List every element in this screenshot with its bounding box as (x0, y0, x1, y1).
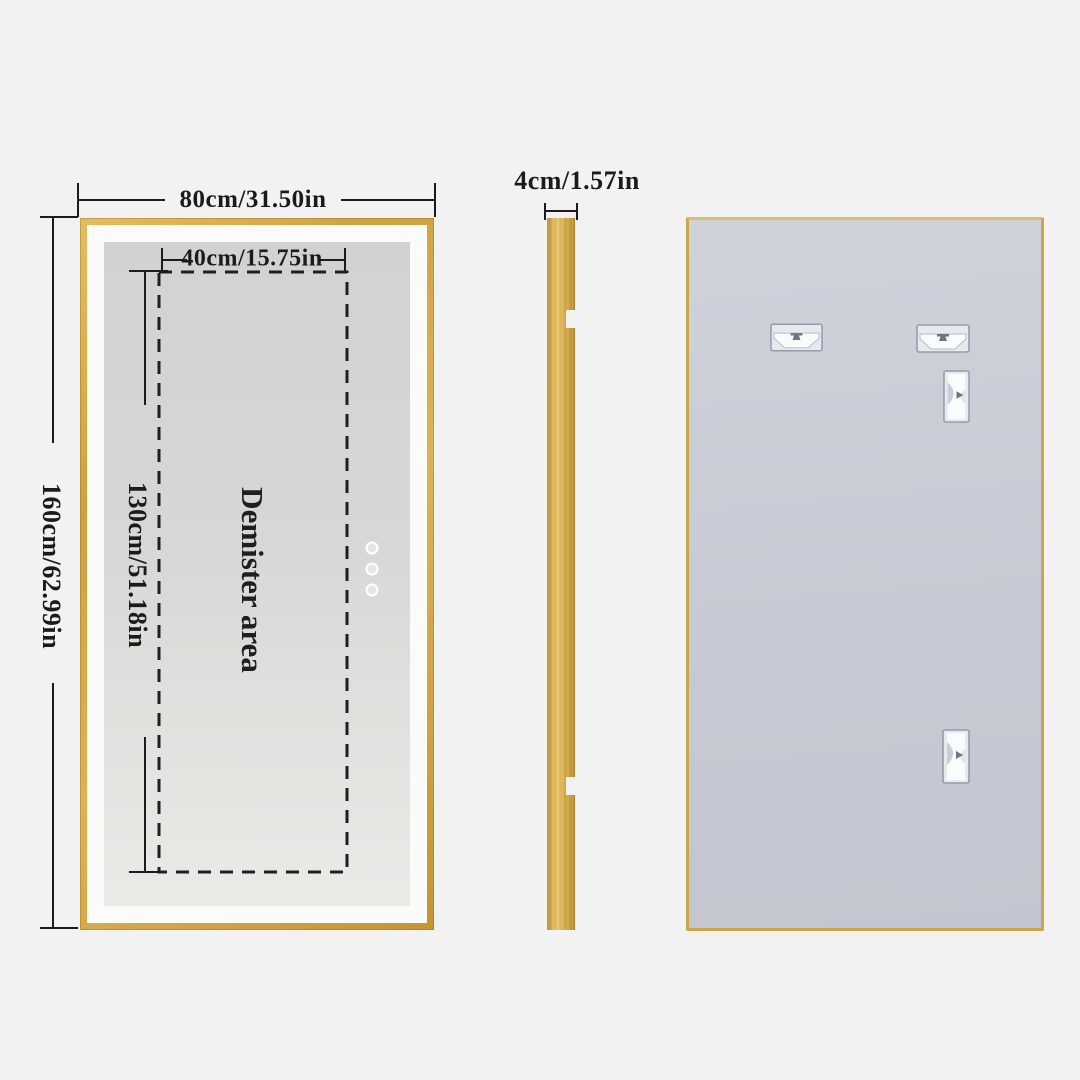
demister-width-label: 40cm/15.75in (181, 246, 322, 273)
back-panel (686, 217, 1044, 931)
mounting-bracket-vertical-icon (942, 729, 970, 784)
dimension-tick (40, 927, 78, 929)
touch-button-icon (366, 563, 379, 576)
dimension-tick (544, 203, 546, 220)
dimension-tick (129, 871, 160, 873)
dimension-tick (40, 216, 78, 218)
dimension-tick (576, 203, 578, 220)
dimension-line (144, 737, 146, 872)
demister-area-label: Demister area (234, 487, 270, 673)
demister-height-label: 130cm/51.18in (122, 482, 152, 648)
dimension-tick (434, 183, 436, 217)
overall-height-label: 160cm/62.99in (36, 483, 66, 649)
dimension-line (341, 199, 435, 201)
mirror-dimension-diagram: Demister area 80cm/31.50in 160cm/62.99in… (0, 0, 1080, 1080)
dimension-tick (129, 270, 168, 272)
side-notch (566, 310, 576, 328)
dimension-line (52, 217, 54, 443)
dimension-line (78, 199, 165, 201)
side-notch (566, 777, 576, 795)
dimension-tick (77, 183, 79, 217)
mounting-bracket-vertical-icon (943, 370, 970, 423)
dimension-line (544, 210, 578, 212)
dimension-tick (344, 248, 346, 273)
mounting-bracket-horizontal-icon (916, 324, 970, 353)
overall-width-label: 80cm/31.50in (180, 186, 327, 214)
thickness-label: 4cm/1.57in (514, 166, 640, 196)
touch-button-icon (366, 584, 379, 597)
dimension-line (144, 271, 146, 405)
mounting-bracket-horizontal-icon (770, 323, 823, 352)
dimension-line (52, 683, 54, 928)
touch-button-icon (366, 542, 379, 555)
